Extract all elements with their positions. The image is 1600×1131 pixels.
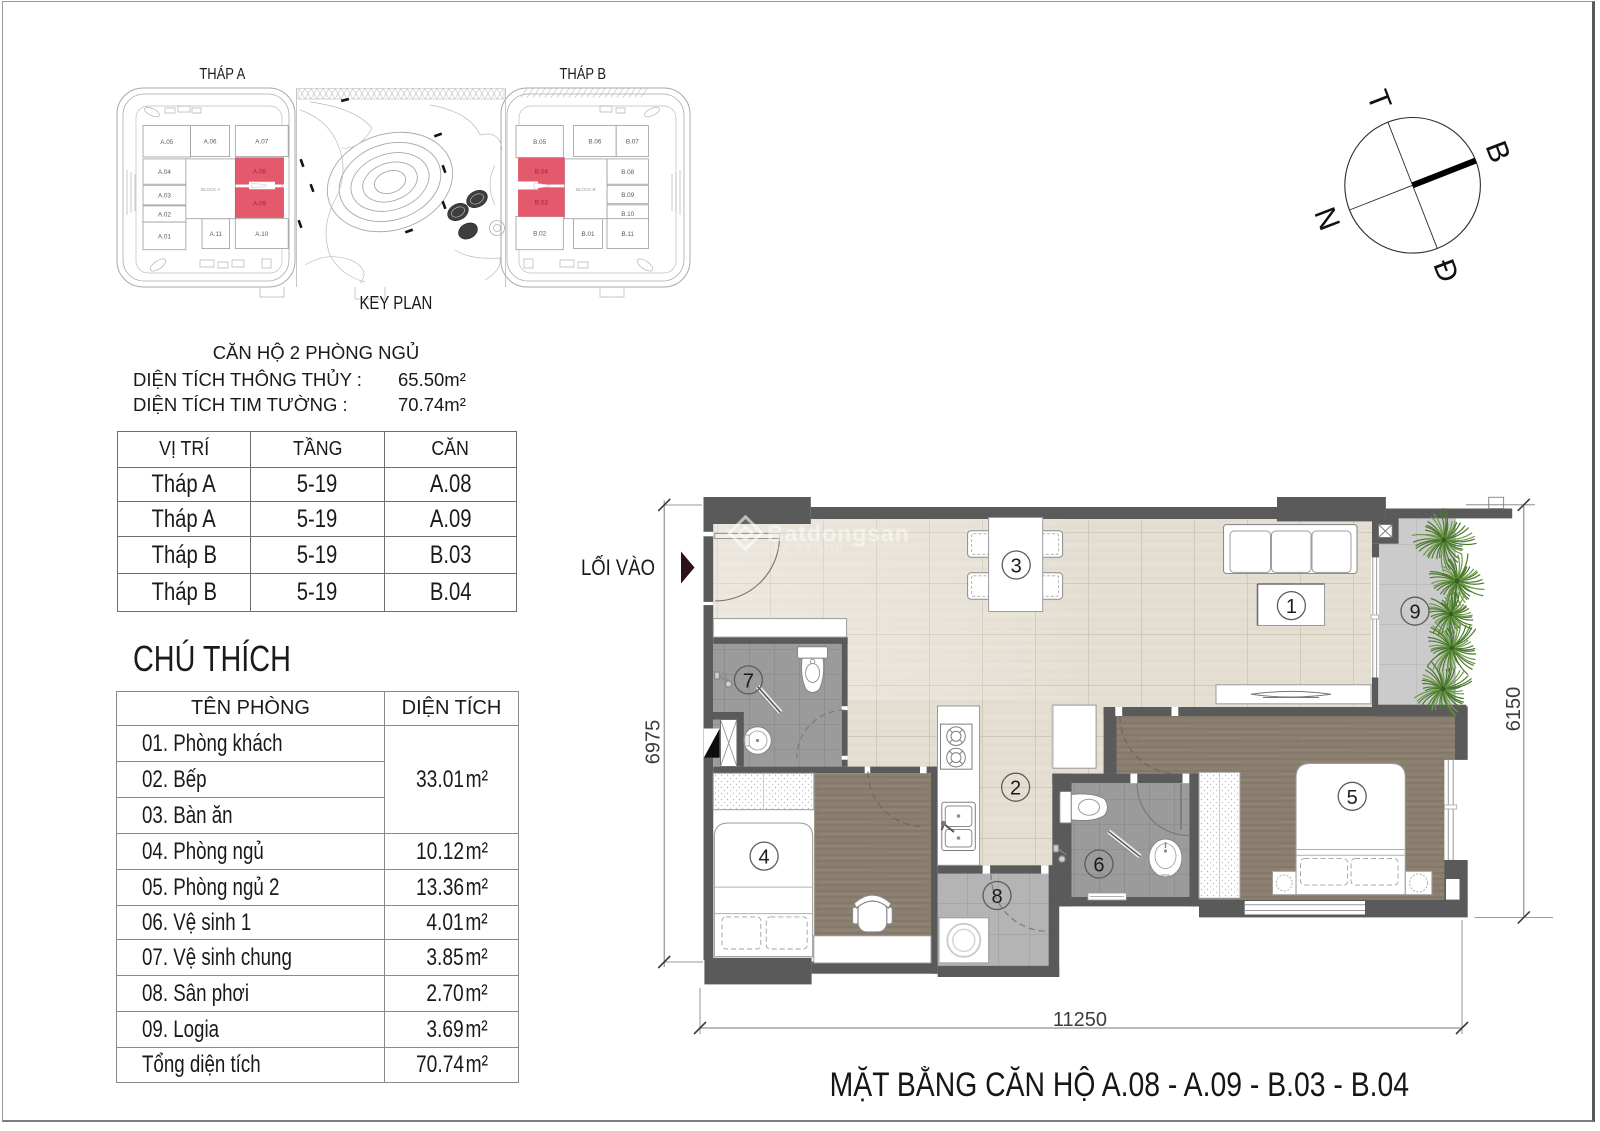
svg-text:A.04: A.04 — [158, 169, 171, 176]
svg-text:2: 2 — [1010, 778, 1021, 800]
svg-text:B.04: B.04 — [535, 169, 548, 176]
svg-text:A.11: A.11 — [210, 231, 223, 238]
svg-text:B.08: B.08 — [621, 169, 634, 176]
svg-text:B.11: B.11 — [621, 231, 634, 238]
svg-text:T: T — [1360, 86, 1397, 115]
svg-text:Đ: Đ — [1426, 255, 1465, 287]
svg-text:B.10: B.10 — [621, 211, 634, 218]
svg-text:A.08: A.08 — [253, 169, 266, 176]
svg-text:A.09: A.09 — [253, 201, 266, 208]
svg-text:the #1 site: the #1 site — [769, 545, 844, 557]
svg-text:6150: 6150 — [1503, 687, 1525, 732]
svg-text:4: 4 — [759, 847, 770, 869]
svg-text:Batdongsan: Batdongsan — [767, 521, 910, 547]
svg-text:B.05: B.05 — [533, 139, 546, 146]
svg-text:B.06: B.06 — [588, 139, 601, 146]
svg-text:B.09: B.09 — [621, 192, 634, 199]
svg-text:B.03: B.03 — [535, 200, 548, 207]
svg-text:B.07: B.07 — [626, 139, 639, 146]
svg-text:A.05: A.05 — [160, 139, 173, 146]
svg-text:B.02: B.02 — [533, 231, 546, 238]
svg-text:A.02: A.02 — [158, 212, 171, 219]
svg-text:A.06: A.06 — [204, 139, 217, 146]
svg-text:A.03: A.03 — [158, 193, 171, 200]
svg-text:A.01: A.01 — [158, 233, 171, 240]
svg-text:B.01: B.01 — [582, 231, 595, 238]
svg-text:1: 1 — [1286, 596, 1297, 618]
svg-text:7: 7 — [743, 670, 754, 692]
svg-text:6975: 6975 — [643, 720, 665, 765]
svg-text:11250: 11250 — [1053, 1009, 1107, 1031]
svg-text:5: 5 — [1347, 787, 1358, 809]
svg-text:6: 6 — [1093, 855, 1104, 877]
svg-text:8: 8 — [991, 886, 1002, 908]
svg-text:A.07: A.07 — [255, 139, 268, 146]
svg-text:BLOCK B: BLOCK B — [576, 187, 596, 192]
svg-text:N: N — [1310, 203, 1346, 235]
svg-text:9: 9 — [1409, 602, 1420, 624]
svg-text:A.10: A.10 — [255, 231, 268, 238]
svg-text:B: B — [1479, 137, 1517, 168]
svg-text:3: 3 — [1011, 556, 1022, 578]
svg-text:BLOCK A: BLOCK A — [201, 187, 220, 192]
